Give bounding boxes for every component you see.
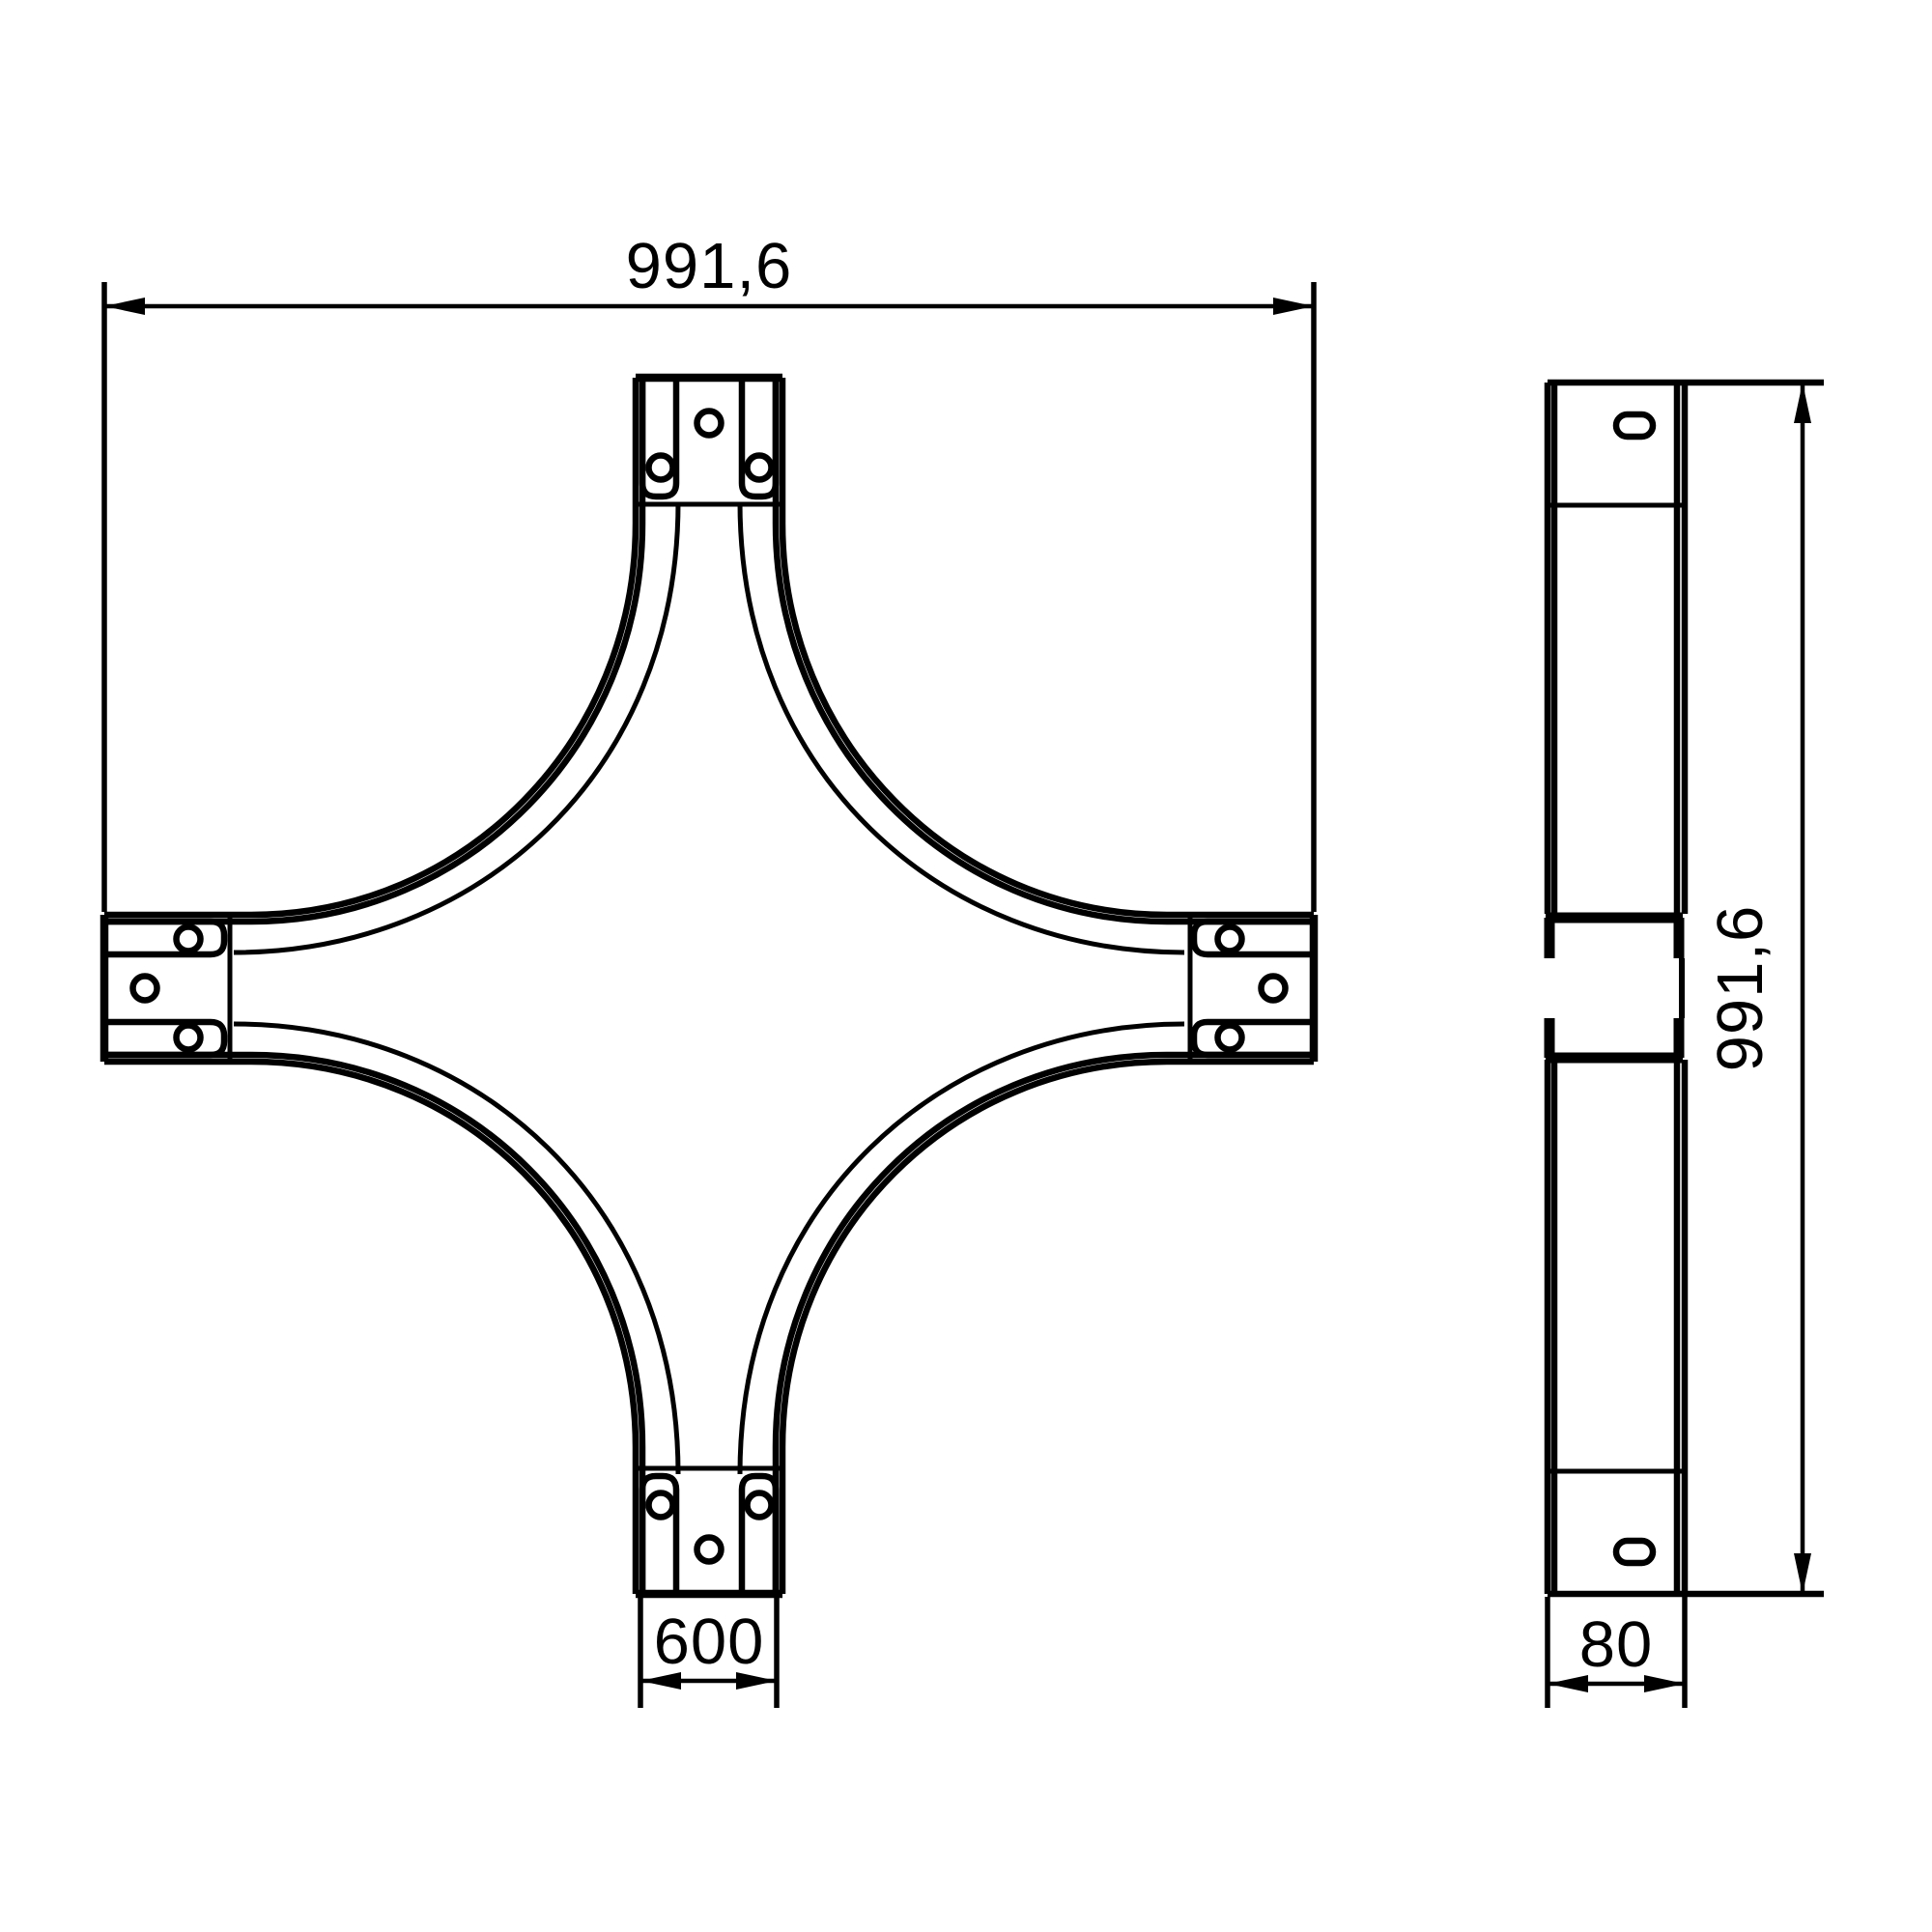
arrowhead-left <box>104 298 145 315</box>
side-view: 991,6 80 <box>1546 383 1824 1708</box>
flange-tabs <box>106 380 1312 1592</box>
hole <box>649 456 673 480</box>
dimension-overall-length: 991,6 <box>1704 383 1811 1594</box>
hole <box>697 1538 722 1562</box>
hole <box>133 977 157 1001</box>
plan-view: 991,6 600 <box>104 230 1314 1708</box>
tab-right-branch-top <box>1194 922 1312 954</box>
bend-line-top-right <box>740 502 1184 952</box>
fillet-outer-bottom-left <box>251 1062 636 1447</box>
hole <box>748 456 772 480</box>
technical-drawing-canvas: 991,6 600 <box>0 0 1932 1932</box>
arrowhead-bottom <box>1794 1553 1811 1594</box>
fillet-outer-top-left <box>251 524 636 915</box>
branch-walls <box>104 378 1314 1594</box>
hole <box>697 412 722 436</box>
floor-bend-lines <box>234 502 1184 1474</box>
arrowhead-top <box>1794 383 1811 423</box>
flange-lines <box>230 504 1190 1468</box>
dim-label-overall-length: 991,6 <box>1704 905 1776 1072</box>
dimension-tray-width: 600 <box>640 1597 777 1708</box>
branch-end-edges <box>104 378 1314 1594</box>
fillet-curves-inner <box>251 524 1167 1447</box>
slot-hole-top <box>1616 414 1653 437</box>
side-walls <box>1548 383 1685 1594</box>
tab-right-branch-bottom <box>1194 1022 1312 1055</box>
dim-label-overall-width: 991,6 <box>626 230 793 302</box>
arrowhead-right <box>1273 298 1314 315</box>
tab-left-branch-top <box>106 922 224 954</box>
hole <box>177 927 201 952</box>
fillet-outer-top-right <box>782 524 1167 915</box>
slot-hole-bottom <box>1616 1541 1653 1563</box>
bend-line-bottom-left <box>234 1024 678 1474</box>
bend-line-bottom-right <box>740 1024 1184 1474</box>
hole <box>649 1493 673 1518</box>
crossing-joint <box>1546 918 1683 1058</box>
dimension-profile-height: 80 <box>1548 1597 1685 1708</box>
hole <box>177 1026 201 1050</box>
hole <box>1218 927 1242 952</box>
dimension-overall-width: 991,6 <box>104 230 1314 912</box>
side-walls-lower <box>1548 1060 1685 1594</box>
dim-label-tray-width: 600 <box>654 1605 765 1678</box>
fillet-curves-outer <box>251 524 1167 1447</box>
top-branch-walls <box>636 378 782 524</box>
fillet-outer-bottom-right <box>782 1062 1167 1447</box>
hole <box>1218 1026 1242 1050</box>
hole <box>748 1493 772 1518</box>
drawing-sheet: 991,6 600 <box>0 0 1932 1932</box>
tab-left-branch-bottom <box>106 1022 224 1055</box>
mounting-holes <box>133 412 1286 1562</box>
dim-label-profile-height: 80 <box>1579 1608 1654 1681</box>
side-walls-upper <box>1548 383 1685 914</box>
bend-line-top-left <box>234 502 678 952</box>
hole <box>1262 977 1286 1001</box>
